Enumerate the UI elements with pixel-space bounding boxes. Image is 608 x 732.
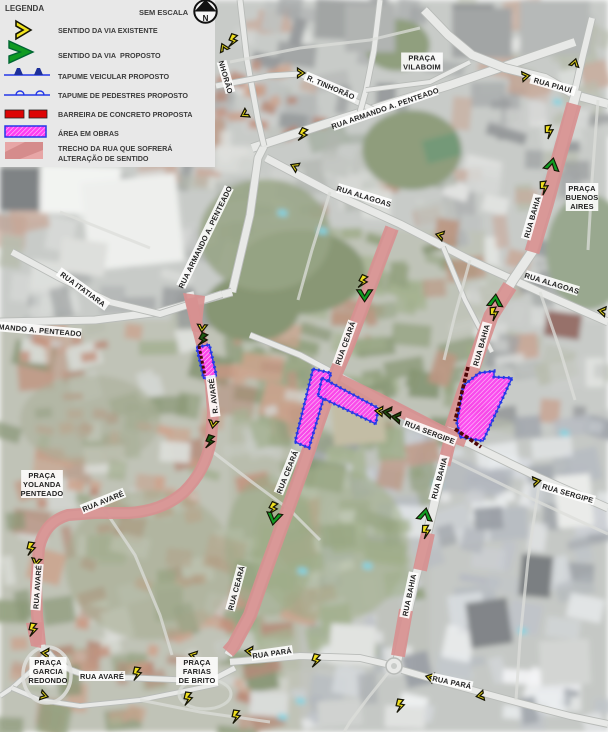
- svg-text:BUENOS: BUENOS: [566, 193, 599, 202]
- svg-text:TRECHO DA RUA QUE SOFRERÁ: TRECHO DA RUA QUE SOFRERÁ: [58, 144, 172, 153]
- svg-text:DE BRITO: DE BRITO: [179, 676, 216, 685]
- svg-text:PRAÇA: PRAÇA: [28, 471, 56, 480]
- svg-text:TAPUME VEICULAR PROPOSTO: TAPUME VEICULAR PROPOSTO: [58, 72, 170, 81]
- svg-text:PRAÇA: PRAÇA: [183, 658, 211, 667]
- svg-text:RUA AVARÉ: RUA AVARÉ: [80, 672, 124, 681]
- svg-text:PRAÇA: PRAÇA: [568, 184, 596, 193]
- svg-text:PENTEADO: PENTEADO: [21, 489, 64, 498]
- svg-text:AIRES: AIRES: [570, 202, 594, 211]
- svg-text:N: N: [203, 14, 209, 23]
- svg-text:PRAÇA: PRAÇA: [408, 53, 436, 62]
- svg-text:GARCIA: GARCIA: [33, 667, 64, 676]
- svg-text:VILABOIM: VILABOIM: [403, 62, 441, 71]
- svg-text:LEGENDA: LEGENDA: [5, 4, 44, 13]
- svg-text:REDONDO: REDONDO: [28, 676, 67, 685]
- svg-text:ALTERAÇÃO DE SENTIDO: ALTERAÇÃO DE SENTIDO: [58, 154, 149, 163]
- svg-text:ÁREA EM OBRAS: ÁREA EM OBRAS: [58, 129, 119, 138]
- svg-text:FARIAS: FARIAS: [183, 667, 211, 676]
- svg-text:PRAÇA: PRAÇA: [34, 658, 62, 667]
- svg-text:SEM ESCALA: SEM ESCALA: [139, 8, 189, 17]
- svg-text:SENTIDO DA VIA EXISTENTE: SENTIDO DA VIA EXISTENTE: [58, 26, 158, 35]
- svg-text:YOLANDA: YOLANDA: [23, 480, 61, 489]
- svg-text:TAPUME DE PEDESTRES PROPOSTO: TAPUME DE PEDESTRES PROPOSTO: [58, 91, 188, 100]
- svg-text:BARREIRA DE CONCRETO PROPOSTA: BARREIRA DE CONCRETO PROPOSTA: [58, 110, 192, 119]
- svg-text:SENTIDO DA VIA PROPOSTO: SENTIDO DA VIA PROPOSTO: [58, 51, 161, 60]
